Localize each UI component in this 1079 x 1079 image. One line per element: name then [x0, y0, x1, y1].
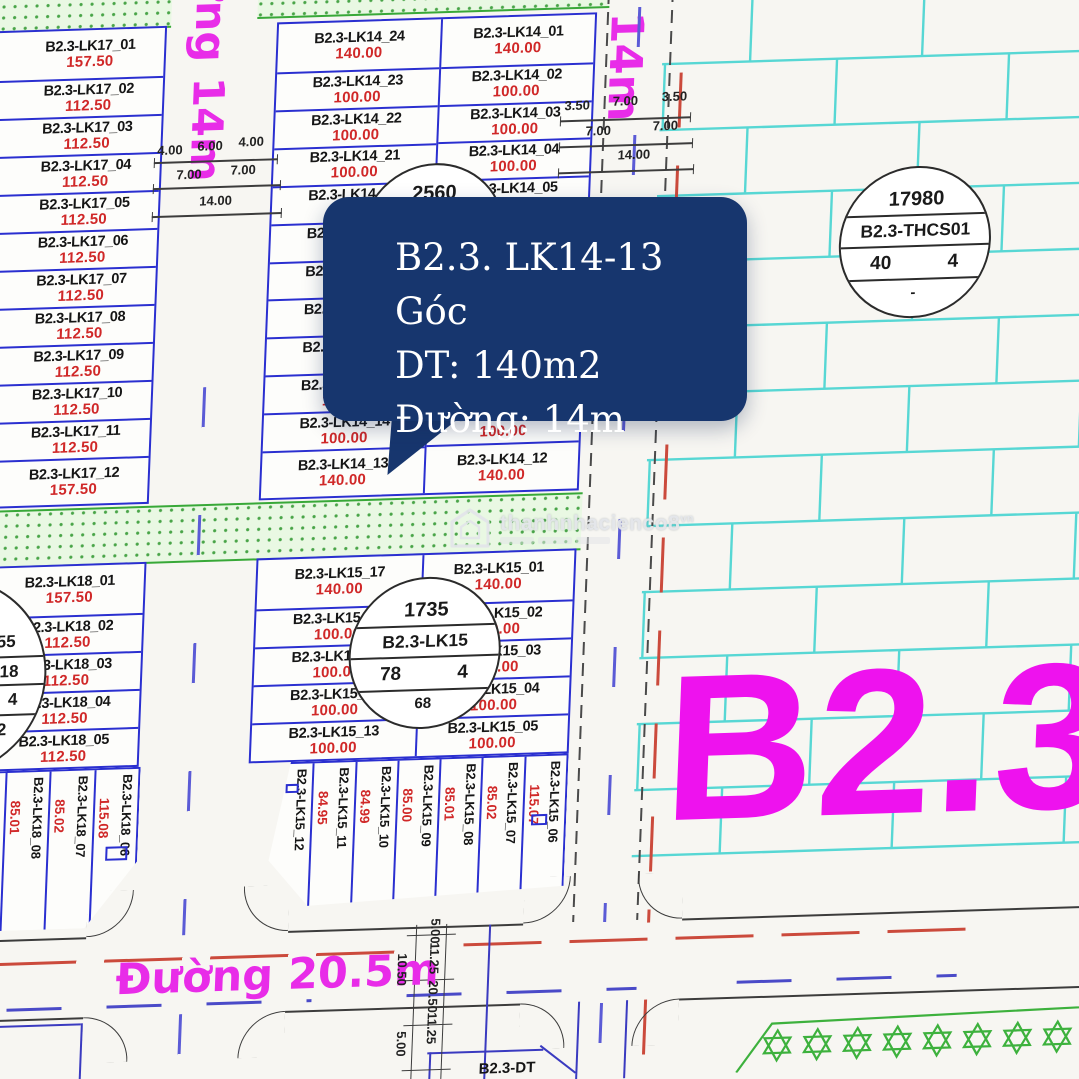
watermark-house-icon [448, 506, 492, 550]
plot-area: 112.50 [59, 249, 106, 266]
dim-label: 4.00 [157, 142, 183, 158]
dim-label: 7.00 [176, 167, 202, 183]
tooltip-title: B2.3. LK14-13 Góc [395, 231, 747, 339]
block-lk17: B2.3-LK17_01 157.50 B2.3-LK17_02 112.50 … [0, 26, 167, 510]
circle-block-name: B2.3-THCS01 [841, 212, 990, 250]
plot-area: 84.99 [357, 789, 373, 823]
block-edge [623, 1000, 628, 1078]
plot-row[interactable]: B2.3-LK14_12 140.00 [425, 440, 579, 493]
watermark-brand: thanhnhacienco8vn [500, 513, 694, 534]
plot-row[interactable]: B2.3-LK17_02 112.50 [0, 76, 163, 119]
plot-row[interactable]: B2.3-LK17_07 112.50 [0, 266, 156, 309]
plot-area: 112.50 [40, 748, 87, 765]
plot-area: 112.50 [57, 287, 104, 304]
block-lk15-rotated: B2.3-LK15_12 114.93 B2.3-LK15_11 84.95 B… [250, 753, 569, 935]
plot-area: 112.50 [60, 211, 107, 228]
dim-label: 4.00 [238, 134, 264, 150]
dim-label: 5.00 [393, 1031, 409, 1057]
plot-cell[interactable]: B2.3-LK18_08 85.01 [0, 772, 50, 941]
watermark-subline [500, 537, 694, 544]
plot-area: 114.93 [258, 793, 275, 834]
dim-label: 3.50 [564, 97, 590, 113]
dim-label: 5.00 [428, 918, 444, 944]
tooltip-area: DT: 140m2 [395, 339, 747, 393]
dim-tick [402, 1069, 451, 1072]
road-centerline [182, 387, 206, 935]
plot-area: 100.00 [468, 735, 516, 752]
plot-area: 140.00 [478, 467, 526, 484]
road-centerline [597, 1003, 602, 1079]
plot-cell[interactable]: B2.3-LK15_09 85.00 [391, 759, 440, 928]
plot-area: 112.50 [52, 439, 99, 456]
plot-row[interactable]: B2.3-LK17_01 157.50 [0, 28, 165, 81]
plot-row[interactable]: B2.3-LK17_05 112.50 [0, 190, 159, 233]
road-corner [523, 876, 571, 923]
dim-label: 20.50 [425, 980, 441, 1013]
plot-area: 85.02 [51, 799, 67, 833]
dim-label: 3.50 [662, 88, 688, 104]
plot-area: 140.00 [319, 472, 367, 489]
road-centerline [176, 1014, 182, 1079]
plot-cell[interactable]: B2.3-LK15_11 84.95 [307, 762, 356, 931]
plot-row[interactable]: B2.3-LK17_12 157.50 [0, 456, 149, 507]
dim-label: 10.50 [394, 953, 410, 986]
plot-area: 112.50 [56, 325, 103, 342]
plot-id: B2.3-LK15_08 [461, 763, 479, 845]
circle-value-right: 4 [947, 251, 958, 273]
plot-row[interactable]: B2.3-LK14_23 100.00 [276, 67, 439, 110]
plot-area: 100.00 [311, 702, 359, 719]
plot-id: B2.3-LK15_11 [334, 767, 352, 848]
plot-area: 140.00 [494, 40, 542, 57]
road-centerline [407, 987, 637, 997]
map-viewport: B2.3 B2.3-LK17_01 157.50 B2.3-LK17_02 11… [0, 0, 1079, 1079]
plot-area: 157.50 [45, 590, 93, 607]
plot-area: 100.00 [309, 740, 357, 757]
road-edge [0, 1017, 83, 1023]
dim-label: 7.00 [230, 162, 256, 178]
plot-id: B2.3-LK15_09 [418, 764, 436, 846]
plot-id: B2.3-LK18_08 [28, 777, 46, 859]
circle-block-name: -LK18 [0, 662, 19, 683]
plot-row[interactable]: B2.3-LK14_22 100.00 [274, 105, 437, 148]
plot-area: 140.00 [315, 581, 363, 598]
plot-area: 84.95 [315, 791, 331, 825]
plot-cell[interactable]: B2.3-LK15_08 85.01 [433, 758, 482, 927]
road-corner [81, 1016, 129, 1063]
plot-area: 85.02 [484, 785, 500, 819]
circle-block-name: B2.3-LK15 [351, 623, 500, 661]
dim-label: 11.25 [424, 1012, 440, 1044]
dim-label: 7.00 [652, 118, 678, 134]
watermark: thanhnhacienco8vn [448, 506, 694, 550]
dim-label: 11.25 [426, 942, 442, 974]
circle-value-right: 4 [8, 690, 18, 710]
plot-row[interactable]: B2.3-LK17_04 112.50 [0, 152, 160, 195]
plot-id: B2.3-LK18_06 [117, 774, 135, 856]
partial-plot-label: B2.3-DT [478, 1059, 535, 1078]
road-edge [679, 984, 1079, 1000]
dim-label: 6.00 [197, 138, 223, 154]
plot-area: 112.50 [65, 97, 112, 114]
symbol-rect [531, 814, 547, 826]
road-corner [242, 885, 290, 932]
road-corner [518, 1002, 566, 1049]
zone-label: B2.3 [661, 635, 1079, 849]
block-edge [540, 1045, 576, 1074]
plot-area: 100.00 [489, 159, 537, 176]
plot-row[interactable]: B2.3-LK17_03 112.50 [0, 114, 162, 157]
plot-row[interactable]: B2.3-LK17_11 112.50 [0, 418, 150, 461]
plot-tooltip: B2.3. LK14-13 Góc DT: 140m2 Đường: 14m [323, 197, 747, 421]
block-edge [575, 1002, 580, 1079]
circle-plot-count: 955 [0, 632, 16, 653]
plot-area: 100.00 [333, 89, 381, 106]
block-edge [428, 1052, 431, 1079]
plot-area: 115.08 [95, 798, 112, 839]
circle-value-right: 4 [457, 661, 468, 683]
dim-label: 7.00 [585, 123, 611, 139]
plot-area: 100.00 [491, 121, 539, 138]
plot-area: 112.50 [43, 672, 90, 689]
block-edge [0, 1023, 81, 1029]
plot-area: 85.00 [399, 788, 415, 822]
plot-id: B2.3-LK15_06 [545, 760, 563, 842]
plot-row[interactable]: B2.3-LK17_06 112.50 [0, 228, 157, 271]
dim-label: 14.00 [617, 146, 650, 162]
plot-row[interactable]: B2.3-LK15_13 100.00 [251, 718, 416, 761]
road-label-bottom: Đường 20.5m [115, 945, 440, 1005]
plot-area: 85.01 [441, 787, 457, 821]
dim-label: 14.00 [199, 193, 232, 209]
plot-row[interactable]: B2.3-LK17_09 112.50 [0, 342, 153, 385]
plot-row[interactable]: B2.3-LK17_10 112.50 [0, 380, 152, 423]
road-corner [86, 890, 134, 937]
plot-id: B2.3-LK18_07 [73, 775, 91, 857]
plot-cell[interactable]: B2.3-LK15_07 85.02 [476, 757, 525, 926]
plot-id: B2.3-LK15_12 [292, 768, 310, 850]
symbol-rect [285, 784, 298, 793]
plot-id: B2.3-LK15_07 [503, 762, 521, 844]
plot-row[interactable]: B2.3-LK14_01 140.00 [441, 14, 595, 67]
circle-value-left: 40 [870, 253, 892, 276]
road-corner [237, 1011, 285, 1058]
plot-row[interactable]: B2.3-LK17_08 112.50 [0, 304, 154, 347]
road-centerline [737, 974, 957, 983]
road-edge [0, 937, 86, 943]
road-corner [636, 873, 684, 920]
plot-area: 157.50 [66, 53, 114, 70]
plot-row[interactable]: B2.3-LK14_24 140.00 [277, 19, 441, 72]
plot-area: 100.00 [492, 84, 540, 101]
plot-area: 85.01 [7, 800, 23, 834]
circle-value-left: 78 [379, 664, 401, 687]
plot-area: 112.50 [62, 173, 109, 190]
road-corner [631, 999, 679, 1046]
plot-area: 112.50 [53, 401, 100, 418]
plot-area: 140.00 [474, 576, 522, 593]
tooltip-road: Đường: 14m [395, 393, 747, 447]
symbol-rect [105, 846, 128, 861]
block-edge [483, 925, 491, 1079]
plot-area: 157.50 [50, 481, 98, 498]
plot-area: 100.00 [320, 430, 368, 447]
plot-area: 100.00 [330, 165, 378, 182]
plot-cell[interactable]: B2.3-LK15_10 84.99 [349, 761, 398, 930]
road-edge [682, 904, 1079, 920]
plot-area: 112.50 [41, 710, 88, 727]
plot-area: 100.00 [332, 127, 380, 144]
plot-id: B2.3-LK15_10 [376, 766, 394, 848]
circle-value-bottom: 72 [0, 720, 7, 741]
plot-area: 112.50 [44, 634, 91, 651]
plot-area: 112.50 [54, 363, 101, 380]
plot-area: 112.50 [63, 135, 110, 152]
dim-label: 7.00 [612, 93, 638, 109]
boundary-red-dashed [463, 927, 973, 946]
plot-area: 140.00 [335, 45, 383, 62]
green-star-band [718, 1000, 1079, 1073]
